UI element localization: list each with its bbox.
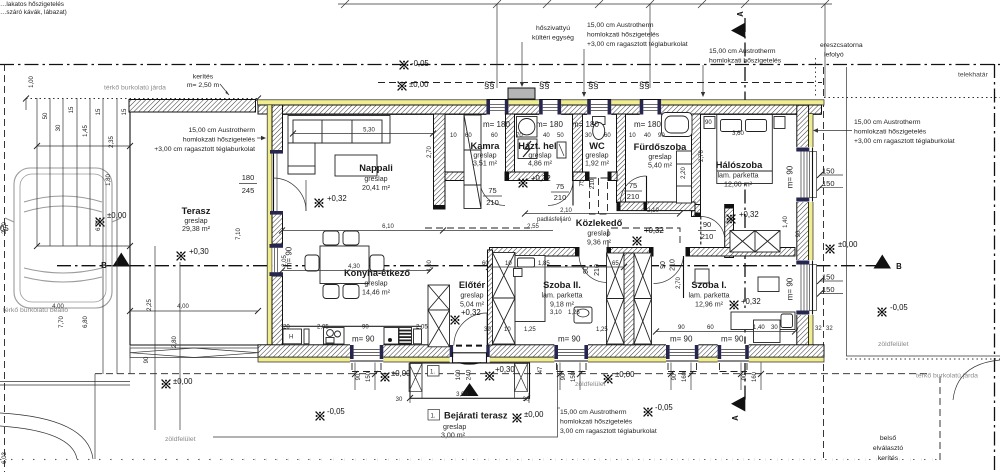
svg-text:m= 90: m= 90 (558, 335, 581, 344)
svg-text:15,00 cm Austrotherm: 15,00 cm Austrotherm (587, 22, 654, 29)
svg-text:4,00: 4,00 (177, 304, 189, 310)
svg-text:lam. parketta: lam. parketta (541, 292, 582, 300)
svg-text:75: 75 (629, 181, 637, 190)
svg-text:zöldfelület: zöldfelület (165, 436, 196, 443)
svg-text:±0,00: ±0,00 (409, 80, 429, 89)
svg-text:90: 90 (678, 325, 685, 331)
svg-text:90: 90 (658, 133, 665, 139)
svg-text:3,00: 3,00 (456, 392, 468, 398)
svg-text:12,96 m²: 12,96 m² (695, 301, 724, 309)
svg-text:±0,00: ±0,00 (173, 377, 193, 386)
svg-text:7,70: 7,70 (59, 316, 65, 328)
svg-text:210: 210 (670, 259, 677, 271)
svg-text:+3,00 cm ragasztott téglaburko: +3,00 cm ragasztott téglaburkolat (854, 138, 955, 145)
svg-text:-0,05: -0,05 (411, 59, 429, 68)
svg-text:3,00 cm ragasztott téglaburkol: 3,00 cm ragasztott téglaburkolat (560, 428, 657, 435)
svg-text:1,00: 1,00 (29, 76, 35, 88)
svg-text:70: 70 (516, 133, 523, 139)
svg-text:+0,32: +0,32 (644, 226, 664, 235)
svg-text:B: B (101, 261, 107, 270)
svg-text:5,30: 5,30 (363, 128, 375, 134)
svg-text:telekhatár: telekhatár (958, 72, 989, 79)
svg-text:3,51 m²: 3,51 m² (473, 160, 498, 168)
svg-text:1,85: 1,85 (538, 261, 550, 267)
svg-text:60: 60 (707, 325, 714, 331)
svg-text:180: 180 (242, 173, 255, 182)
svg-text:40: 40 (543, 133, 550, 139)
svg-text:zöldfelület: zöldfelület (878, 341, 909, 348)
svg-text:4,00: 4,00 (52, 304, 64, 310)
svg-text:belső: belső (880, 435, 896, 442)
svg-text:Közlekedő: Közlekedő (576, 218, 623, 228)
svg-text:10: 10 (629, 133, 636, 139)
svg-text:…száró kávák, lábazat): …száró kávák, lábazat) (0, 9, 67, 16)
svg-text:12,00 m²: 12,00 m² (724, 181, 753, 189)
svg-text:Hálószoba: Hálószoba (716, 160, 763, 170)
svg-text:14,46 m²: 14,46 m² (362, 289, 391, 297)
svg-text:±0,00: ±0,00 (524, 410, 544, 419)
svg-text:m= 180: m= 180 (634, 120, 661, 129)
svg-text:30: 30 (523, 397, 530, 403)
svg-text:15,00 cm Austrotherm: 15,00 cm Austrotherm (709, 48, 776, 55)
svg-text:30: 30 (771, 325, 778, 331)
svg-text:6,80: 6,80 (83, 316, 89, 328)
svg-text:150: 150 (366, 371, 372, 382)
svg-text:150: 150 (571, 371, 577, 382)
svg-text:Bejárati terasz: Bejárati terasz (444, 411, 508, 421)
svg-text:…lakatos hőszigetelés: …lakatos hőszigetelés (0, 1, 64, 8)
svg-text:150: 150 (822, 179, 835, 188)
svg-text:greslap: greslap (473, 152, 496, 160)
svg-text:WC: WC (589, 141, 605, 151)
svg-text:homlokzati hőszigetelés: homlokzati hőszigetelés (587, 32, 660, 39)
svg-text:210: 210 (554, 193, 567, 202)
svg-text:3,60: 3,60 (732, 131, 744, 137)
svg-text:240: 240 (466, 369, 473, 380)
svg-text:15: 15 (69, 106, 75, 113)
svg-text:60: 60 (604, 133, 611, 139)
svg-text:90: 90 (705, 120, 712, 126)
svg-text:32: 32 (815, 326, 822, 332)
svg-text:1,40: 1,40 (783, 216, 789, 228)
svg-text:Fürdőszoba: Fürdőszoba (634, 142, 688, 152)
svg-text:homlokzati hőszigetelés: homlokzati hőszigetelés (854, 129, 927, 136)
svg-text:2,35: 2,35 (109, 136, 115, 148)
svg-text:210: 210 (627, 192, 640, 201)
svg-text:6,03: 6,03 (2, 452, 8, 464)
svg-text:6,70: 6,70 (96, 219, 102, 231)
svg-text:150: 150 (822, 285, 835, 294)
svg-text:90: 90 (561, 373, 567, 380)
svg-text:2,70: 2,70 (2, 222, 8, 234)
svg-text:+0,30: +0,30 (189, 247, 209, 256)
svg-text:kültéri egység: kültéri egység (532, 35, 574, 42)
svg-text:kerítés: kerítés (878, 455, 899, 462)
svg-text:15: 15 (122, 108, 128, 115)
svg-text:65: 65 (612, 261, 619, 267)
svg-text:160: 160 (752, 371, 758, 382)
svg-text:2,10: 2,10 (647, 208, 659, 214)
svg-text:10: 10 (450, 133, 457, 139)
svg-text:75: 75 (579, 179, 586, 187)
svg-text:homlokzati hőszigetelés: homlokzati hőszigetelés (709, 58, 782, 65)
svg-text:-0,05: -0,05 (327, 407, 345, 416)
svg-text:B: B (896, 262, 902, 271)
svg-text:2,55: 2,55 (527, 224, 539, 230)
svg-text:-0,05: -0,05 (890, 303, 908, 312)
svg-text:§§: §§ (484, 80, 495, 91)
svg-text:padlásfeljáró: padlásfeljáró (537, 217, 572, 223)
svg-text:m= 180: m= 180 (572, 120, 599, 129)
svg-text:20,41 m²: 20,41 m² (362, 184, 391, 192)
svg-text:ereszcsatorna: ereszcsatorna (820, 42, 863, 49)
svg-text:+0,32: +0,32 (461, 308, 481, 317)
svg-text:6,10: 6,10 (382, 224, 394, 230)
svg-text:210: 210 (594, 264, 601, 276)
svg-text:1.: 1. (431, 414, 436, 420)
svg-text:50: 50 (557, 133, 564, 139)
svg-text:90: 90 (362, 325, 369, 331)
svg-text:15,00 cm Austrotherm: 15,00 cm Austrotherm (189, 127, 256, 134)
svg-text:Szoba II.: Szoba II. (543, 280, 581, 290)
svg-text:1,80: 1,80 (106, 174, 112, 186)
svg-text:Nappali: Nappali (359, 163, 393, 173)
svg-text:210: 210 (589, 178, 596, 189)
svg-text:1,40: 1,40 (753, 325, 765, 331)
svg-text:75: 75 (488, 186, 496, 195)
svg-text:30: 30 (585, 133, 592, 139)
svg-text:+3,00 cm ragasztott téglaburko: +3,00 cm ragasztott téglaburkolat (587, 41, 688, 48)
svg-text:1,25: 1,25 (596, 327, 608, 333)
svg-text:hőszivattyú: hőszivattyú (536, 25, 570, 32)
svg-text:2,25: 2,25 (147, 299, 153, 311)
svg-text:2,70: 2,70 (676, 277, 682, 289)
svg-text:m= 90: m= 90 (670, 335, 693, 344)
svg-text:60: 60 (482, 261, 489, 267)
svg-text:90: 90 (660, 261, 667, 269)
svg-text:1.: 1. (430, 370, 435, 376)
svg-text:±0,00: ±0,00 (615, 370, 635, 379)
svg-text:60: 60 (491, 133, 498, 139)
svg-text:±0,00: ±0,00 (391, 369, 411, 378)
svg-text:+0,32: +0,32 (739, 210, 759, 219)
svg-text:90: 90 (144, 356, 150, 363)
svg-text:30: 30 (56, 124, 62, 131)
svg-text:50: 50 (43, 112, 49, 119)
svg-text:90: 90 (703, 220, 711, 229)
svg-text:10: 10 (505, 261, 512, 267)
svg-text:greslap: greslap (648, 153, 671, 161)
svg-text:15: 15 (96, 108, 102, 115)
svg-text:m= 2,50 m: m= 2,50 m (187, 82, 220, 89)
svg-text:lefolyó: lefolyó (824, 52, 844, 59)
svg-text:20: 20 (283, 325, 290, 331)
svg-text:150: 150 (822, 167, 835, 176)
svg-text:210: 210 (701, 232, 714, 241)
svg-text:40: 40 (644, 133, 651, 139)
svg-text:zöldfelület: zöldfelület (575, 381, 606, 388)
svg-text:§§: §§ (588, 80, 599, 91)
svg-text:greslap: greslap (364, 280, 387, 288)
svg-text:Kamra: Kamra (471, 141, 501, 151)
svg-text:2,10: 2,10 (560, 208, 572, 214)
svg-text:30: 30 (396, 397, 403, 403)
svg-text:9,18 m²: 9,18 m² (550, 301, 575, 309)
svg-text:m= 90: m= 90 (352, 335, 375, 344)
svg-text:15,00 cm Austrotherm: 15,00 cm Austrotherm (854, 119, 921, 126)
svg-text:H: H (289, 335, 293, 341)
svg-text:10: 10 (504, 327, 511, 333)
svg-text:4,86 m²: 4,86 m² (528, 160, 553, 168)
svg-text:-0,05: -0,05 (655, 403, 673, 412)
svg-text:90: 90 (742, 373, 748, 380)
svg-text:4,30: 4,30 (348, 264, 360, 270)
svg-text:+0,32: +0,32 (531, 174, 551, 183)
svg-text:elválasztó: elválasztó (873, 445, 903, 452)
svg-text:60: 60 (465, 133, 472, 139)
svg-text:5,40 m²: 5,40 m² (648, 162, 673, 170)
svg-text:15,00 cm Austrotherm: 15,00 cm Austrotherm (560, 409, 627, 416)
svg-text:1,25: 1,25 (568, 310, 580, 316)
svg-text:100: 100 (455, 369, 462, 380)
svg-text:2,05: 2,05 (317, 325, 329, 331)
svg-text:greslap: greslap (460, 292, 483, 300)
svg-text:2,20: 2,20 (681, 167, 687, 179)
svg-text:greslap: greslap (587, 230, 610, 238)
svg-text:2,70: 2,70 (699, 150, 705, 162)
svg-text:m= 180: m= 180 (536, 120, 563, 129)
svg-text:greslap: greslap (443, 423, 466, 431)
svg-text:90: 90 (796, 230, 802, 237)
svg-text:térkő burkolatú járda: térkő burkolatú járda (104, 85, 166, 92)
svg-text:Előtér: Előtér (459, 280, 486, 290)
svg-text:3,10: 3,10 (550, 310, 562, 316)
svg-text:m= 90: m= 90 (786, 165, 795, 188)
svg-text:160: 160 (682, 371, 688, 382)
svg-text:§§: §§ (639, 80, 650, 91)
svg-text:lam. parketta: lam. parketta (688, 292, 729, 300)
svg-text:Terasz: Terasz (182, 206, 211, 216)
svg-text:2,80: 2,80 (172, 336, 178, 348)
svg-text:150: 150 (822, 273, 835, 282)
svg-text:greslap: greslap (184, 217, 207, 225)
svg-text:homlokzati hőszigetelés: homlokzati hőszigetelés (560, 419, 633, 426)
svg-text:térkő burkolatú járda: térkő burkolatú járda (916, 373, 978, 380)
svg-text:29,38 m²: 29,38 m² (182, 225, 211, 233)
svg-text:§§: §§ (539, 80, 550, 91)
svg-text:greslap: greslap (528, 152, 551, 160)
svg-text:Házt. hely: Házt. hely (518, 141, 562, 151)
svg-text:90: 90 (672, 373, 678, 380)
svg-text:greslap: greslap (364, 175, 387, 183)
svg-text:2,05: 2,05 (416, 325, 428, 331)
svg-text:32: 32 (826, 326, 833, 332)
svg-text:75: 75 (556, 182, 564, 191)
svg-text:245: 245 (242, 186, 255, 195)
svg-text:kerítés: kerítés (193, 74, 214, 81)
svg-text:+0,32: +0,32 (327, 194, 347, 203)
svg-text:A: A (731, 415, 740, 421)
svg-text:A: A (736, 11, 745, 17)
svg-text:210: 210 (486, 198, 499, 207)
svg-text:+3,00 cm ragasztott téglaburko: +3,00 cm ragasztott téglaburkolat (154, 146, 255, 153)
svg-text:m= 90: m= 90 (786, 277, 795, 300)
svg-text:1,25: 1,25 (524, 327, 536, 333)
svg-text:±0,00: ±0,00 (838, 240, 858, 249)
svg-text:7,10: 7,10 (236, 228, 242, 240)
svg-text:lam. parketta: lam. parketta (717, 172, 758, 180)
svg-text:m= 180: m= 180 (483, 120, 510, 129)
svg-text:90: 90 (356, 373, 362, 380)
svg-text:1,45: 1,45 (83, 125, 89, 137)
svg-text:greslap: greslap (585, 152, 608, 160)
svg-text:2,70: 2,70 (427, 146, 433, 158)
svg-text:1,92 m²: 1,92 m² (585, 160, 610, 168)
svg-text:+0,32: +0,32 (741, 297, 761, 306)
svg-text:2,05: 2,05 (282, 255, 288, 267)
svg-text:47: 47 (538, 366, 544, 373)
svg-text:m= 90: m= 90 (721, 335, 744, 344)
svg-text:3,00 m²: 3,00 m² (441, 432, 466, 440)
svg-text:30: 30 (484, 327, 491, 333)
svg-text:+0,30: +0,30 (495, 365, 515, 374)
svg-text:homlokzati hőszigetelés: homlokzati hőszigetelés (183, 137, 256, 144)
